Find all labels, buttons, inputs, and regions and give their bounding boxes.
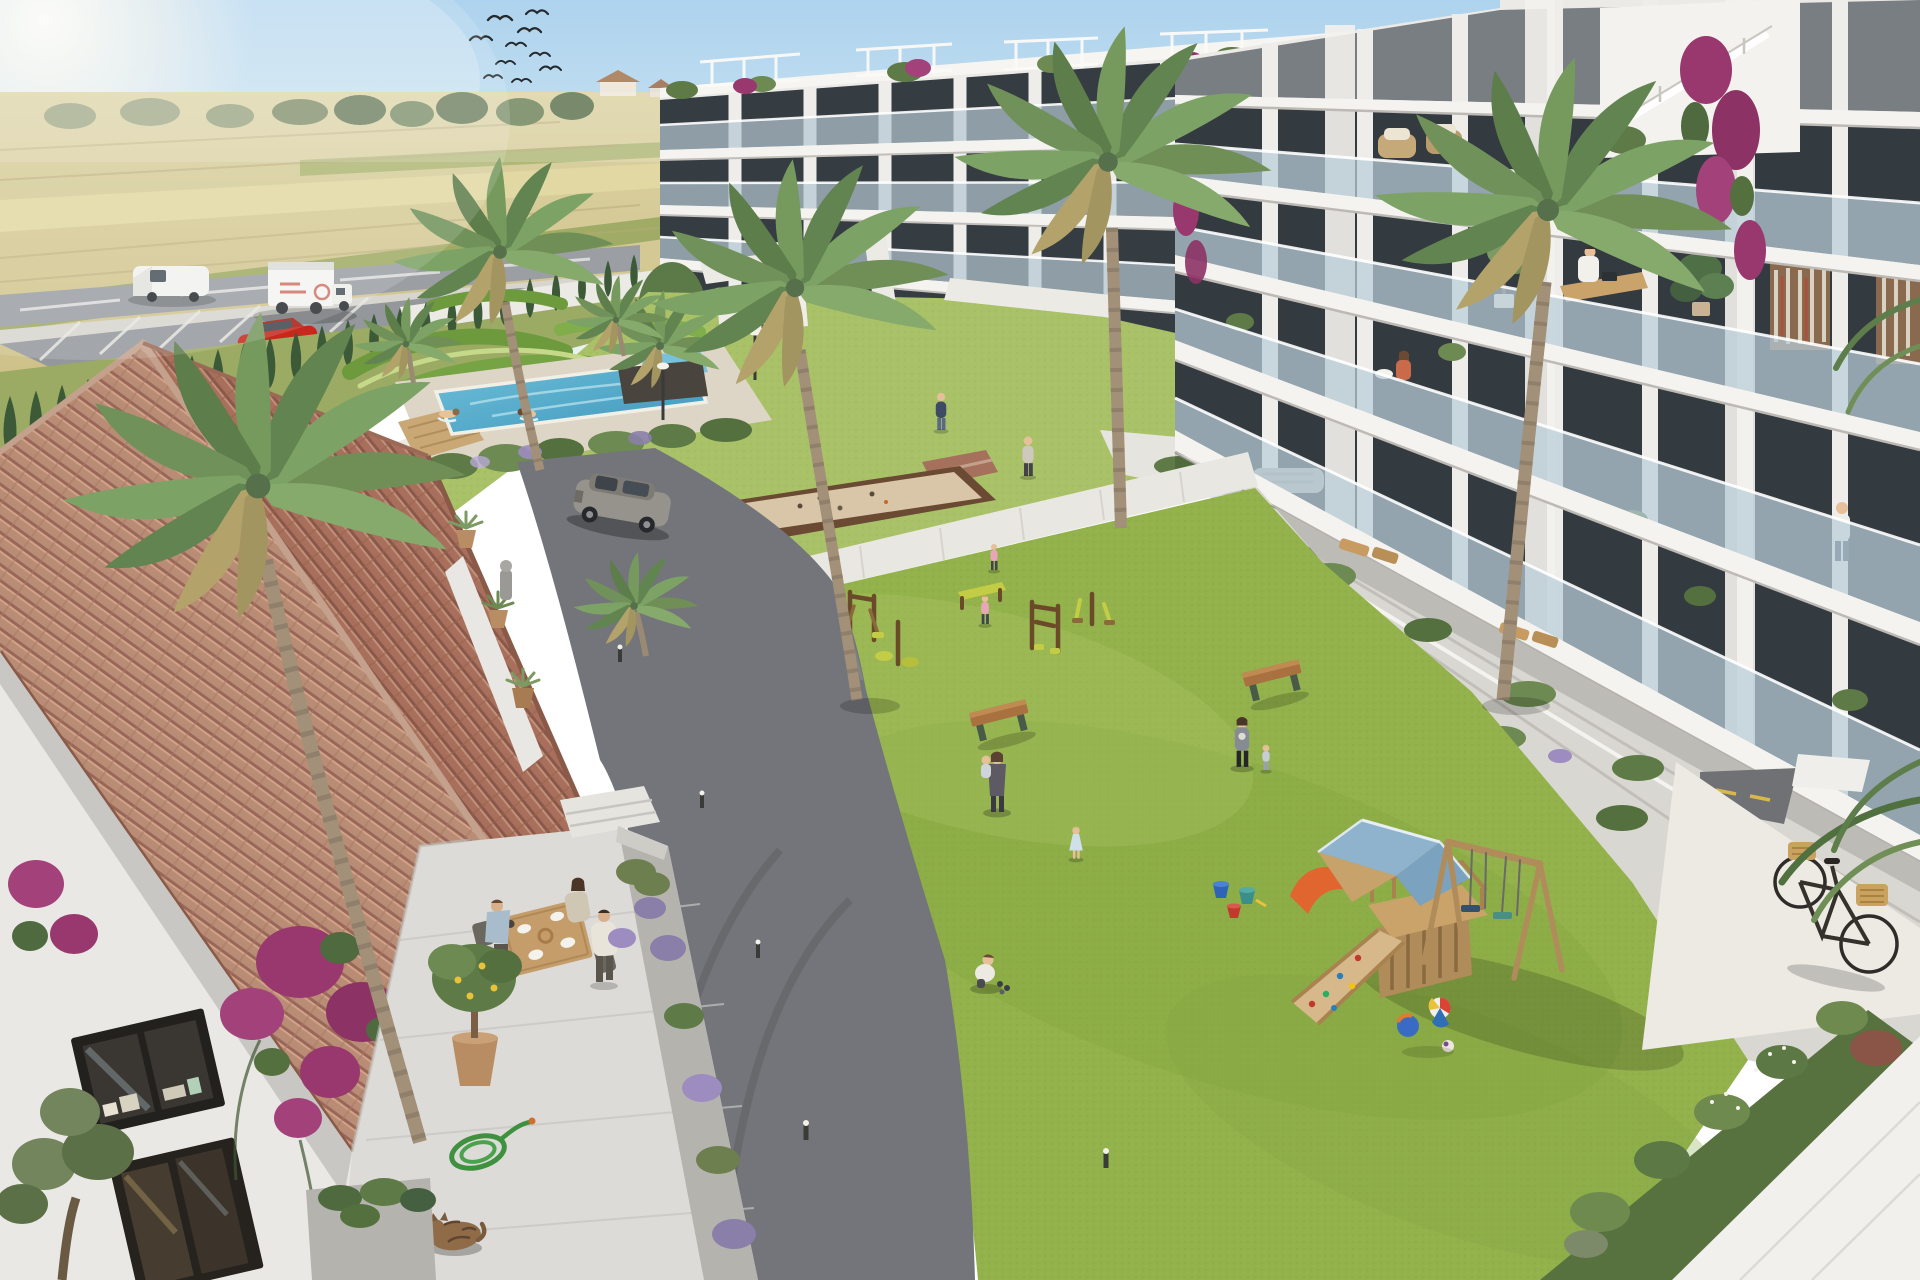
render-canvas: Aerial render of a Mediterranean new-bui… xyxy=(0,0,1920,1280)
architectural-render: Aerial render of a Mediterranean new-bui… xyxy=(0,0,1920,1280)
statue xyxy=(500,560,512,600)
bottom-planter-box xyxy=(306,1178,436,1280)
